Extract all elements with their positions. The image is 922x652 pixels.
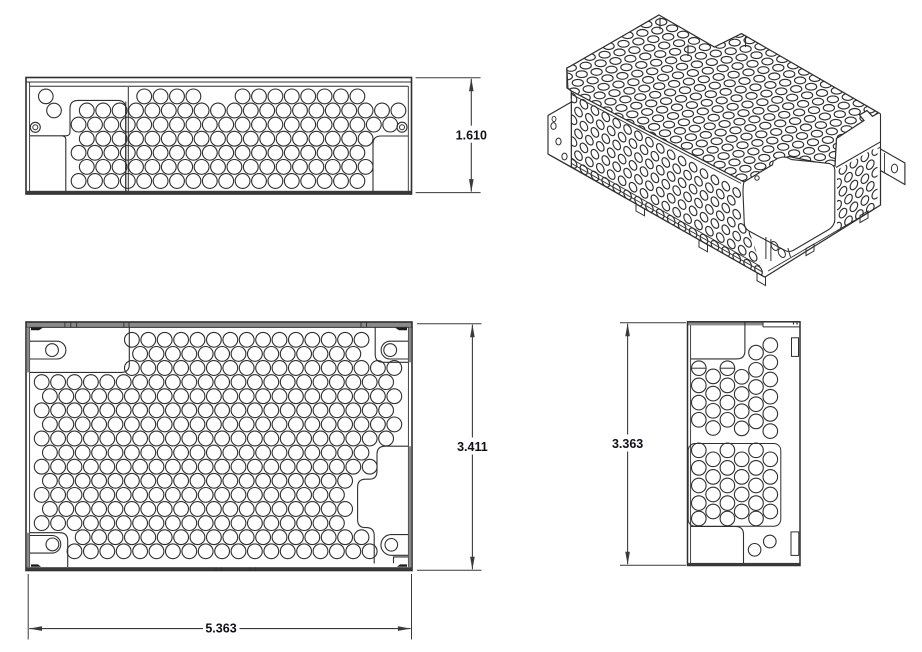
svg-text:1.610: 1.610 xyxy=(456,128,487,142)
svg-text:3.411: 3.411 xyxy=(457,440,488,454)
svg-text:5.363: 5.363 xyxy=(205,621,236,635)
svg-text:3.363: 3.363 xyxy=(612,437,643,451)
